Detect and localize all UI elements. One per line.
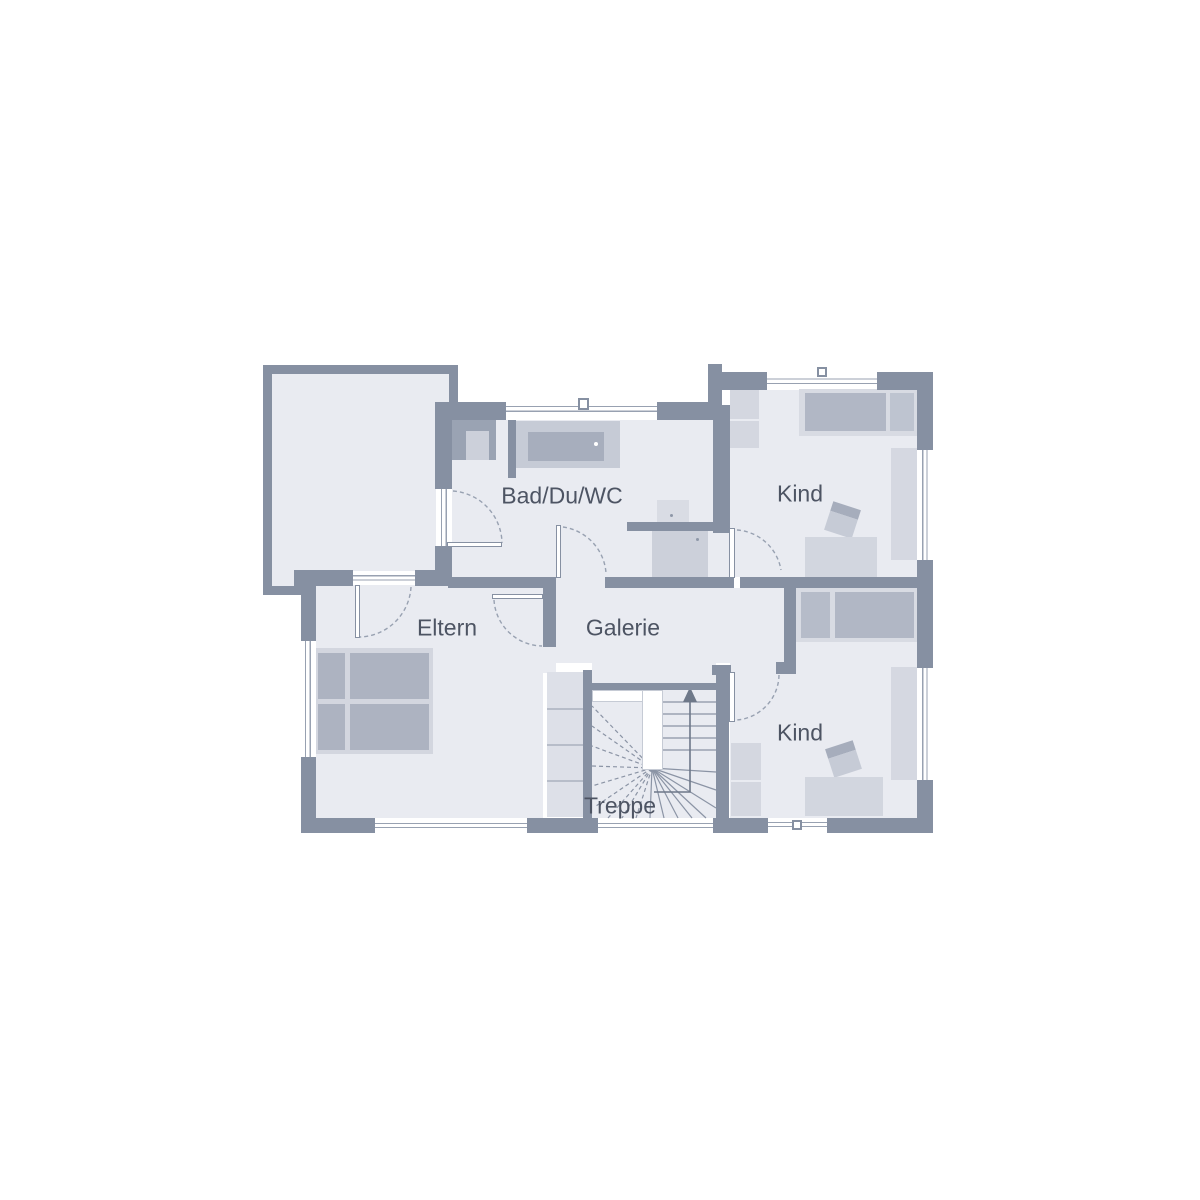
wall [508, 420, 516, 478]
door-balcony-band [353, 571, 415, 585]
window-handle [792, 820, 802, 830]
lines-overlay [0, 0, 1200, 1200]
window-eltern-west [300, 641, 316, 757]
door-bad-arc [563, 527, 606, 573]
door-bad-west-band [436, 489, 452, 546]
room-label-treppe: Treppe [584, 793, 656, 820]
wall [415, 570, 448, 586]
floorplan: Bad/Du/WC Kind Eltern Galerie Kind Trepp… [0, 0, 1200, 1200]
wall [527, 818, 598, 833]
wall [605, 577, 734, 588]
wall [301, 818, 375, 833]
wall [917, 780, 933, 833]
window-handle [578, 398, 589, 410]
wall [294, 570, 353, 586]
door-bad-west-arc [453, 491, 502, 543]
room-label-bad: Bad/Du/WC [501, 483, 622, 510]
door-kind-top-arc [737, 530, 781, 570]
door-kind-bottom-leaf [729, 672, 735, 722]
window-eltern-south [375, 819, 527, 832]
door-kind-bottom-arc [737, 675, 779, 720]
door-bad-west-leaf [447, 542, 502, 547]
wall [713, 405, 730, 533]
wall [592, 683, 717, 690]
door-bad-leaf [556, 525, 561, 578]
wall [435, 402, 452, 489]
wall [784, 588, 796, 662]
room-label-eltern: Eltern [417, 615, 477, 642]
wall [877, 372, 933, 390]
door-eltern-leaf [492, 594, 543, 599]
wall [917, 560, 933, 668]
wall [263, 365, 272, 595]
wall [776, 662, 796, 674]
wall [657, 402, 708, 420]
door-frame-gap [734, 577, 740, 588]
door-balcony-arc [360, 587, 411, 637]
room-label-kind-top: Kind [777, 481, 823, 508]
wall [716, 667, 729, 820]
door-kind-top-leaf [729, 528, 735, 578]
wall [449, 365, 458, 402]
wall [740, 577, 917, 588]
wall [448, 577, 556, 588]
window-kind-top-east [918, 450, 932, 560]
wall [722, 372, 767, 390]
window-handle [817, 367, 827, 377]
door-balcony-leaf [355, 585, 360, 638]
wall [627, 522, 717, 531]
wall [543, 587, 556, 647]
wall [713, 818, 768, 833]
wall [263, 365, 458, 374]
room-label-galerie: Galerie [586, 615, 660, 642]
window-kind-bottom-east [918, 668, 932, 780]
door-eltern-arc [494, 600, 542, 646]
window-stairs-south [598, 819, 713, 832]
stair-newel [642, 690, 663, 770]
stair-treads-solid [650, 768, 716, 818]
room-label-kind-bottom: Kind [777, 720, 823, 747]
